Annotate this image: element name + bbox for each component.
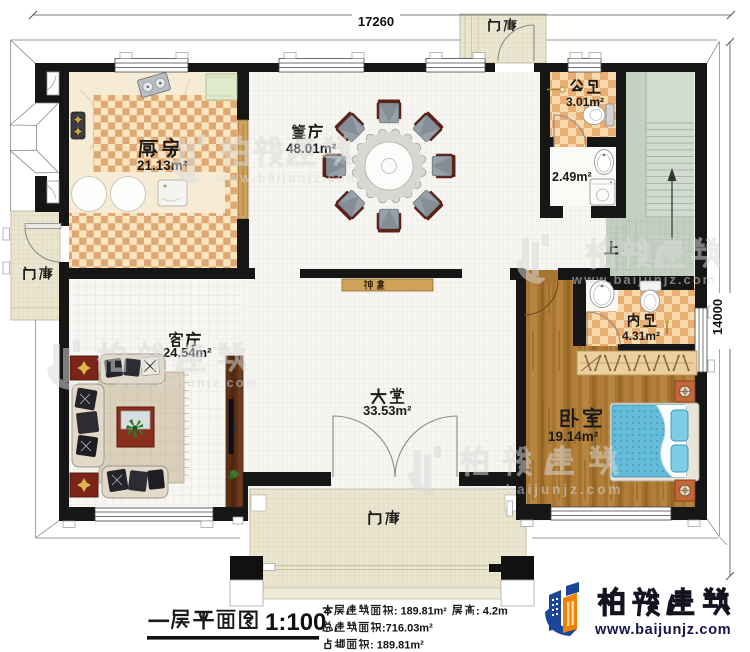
svg-text:www.baijunjz.com: www.baijunjz.com [594,622,731,638]
svg-text:: 189.81m²: : 189.81m² [370,640,424,652]
svg-text:www.baijunjz.com: www.baijunjz.com [458,482,624,497]
svg-text:: 4.2m: : 4.2m [476,606,508,618]
svg-text:www.baijunjz.com: www.baijunjz.com [571,272,716,287]
svg-text:14000: 14000 [710,299,725,335]
svg-text:1:100: 1:100 [265,609,326,636]
svg-text:19.14m²: 19.14m² [548,429,599,444]
svg-text:2.49m²: 2.49m² [552,170,592,184]
svg-text::716.03m²: :716.03m² [382,623,433,635]
svg-text:www.baijunjz.com: www.baijunjz.com [114,375,259,390]
svg-text:www.baijunjz.com: www.baijunjz.com [215,170,360,185]
svg-text:3.01m²: 3.01m² [566,95,604,109]
svg-text:4.31m²: 4.31m² [622,329,660,343]
svg-text:17260: 17260 [358,14,394,29]
svg-text:: 189.81m²: : 189.81m² [394,606,447,618]
svg-text:33.53m²: 33.53m² [363,403,412,418]
